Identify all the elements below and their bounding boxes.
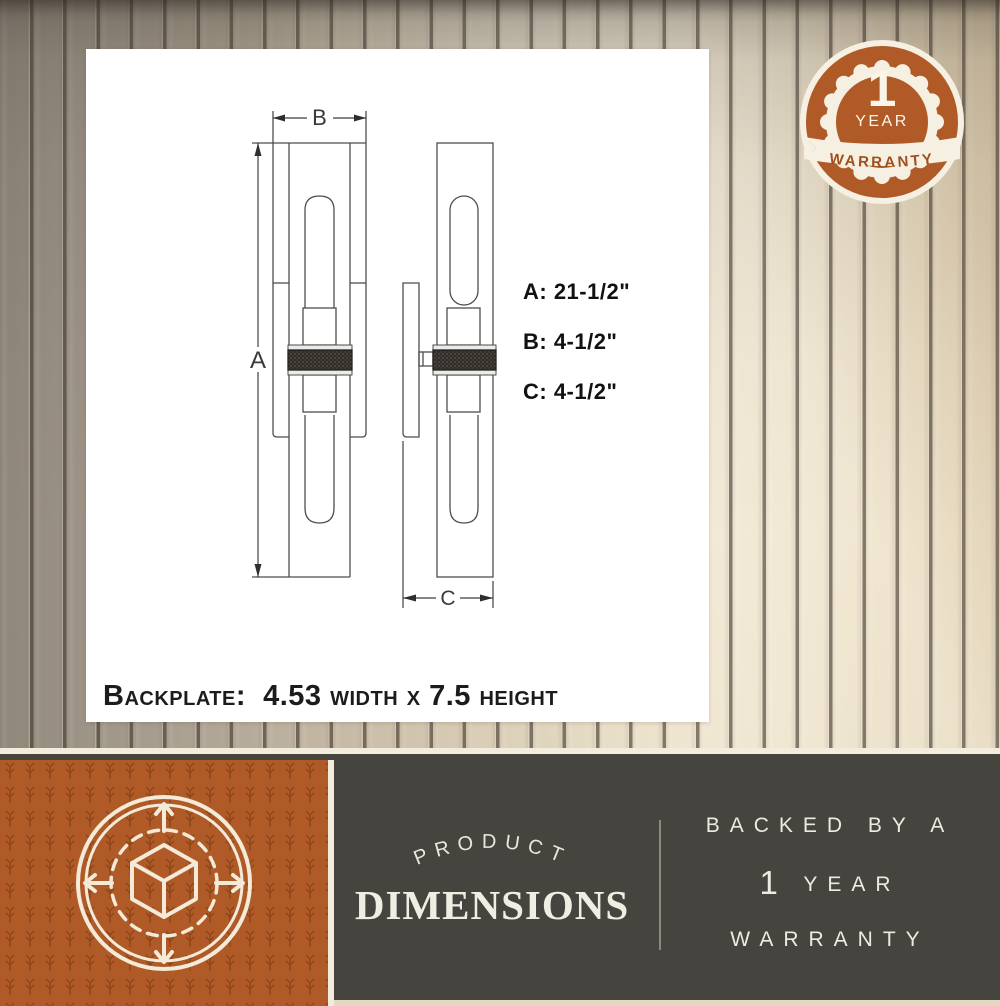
dim-letter-c: C: [440, 587, 455, 610]
svg-text:PRODUCT: PRODUCT: [411, 831, 574, 870]
warranty-line-2: 1 YEAR: [759, 864, 900, 902]
dimensions-title: DIMENSIONS: [342, 881, 642, 929]
dimension-value-b: B: 4-1/2": [523, 329, 617, 355]
product-dimensions-graphic: { "card": { "dim_letters": { "a": "A", "…: [0, 0, 1000, 1000]
footer-separator: [328, 760, 334, 1006]
dimension-value-a: A: 21-1/2": [523, 279, 630, 305]
product-label: PRODUCT: [411, 831, 574, 870]
warranty-badge: 1 YEAR WARRANTY: [798, 40, 966, 208]
warranty-text-block: BACKED BY A 1 YEAR WARRANTY: [680, 760, 980, 1006]
warranty-year-unit: YEAR: [803, 873, 900, 896]
3d-dimensions-icon: [78, 797, 250, 969]
footer-strip: PRODUCT DIMENSIONS BACKED BY A 1 YEAR WA…: [0, 748, 1000, 1000]
badge-unit: YEAR: [855, 113, 909, 130]
warranty-line-3: WARRANTY: [730, 928, 929, 952]
warranty-line-1: BACKED BY A: [706, 814, 955, 838]
diagram-card: B A C A: 21-1/2" B: 4-1/2" C: 4-1/2" Bac…: [86, 49, 709, 722]
dimension-value-c: C: 4-1/2": [523, 379, 617, 405]
dim-letter-b: B: [312, 105, 327, 130]
backplate-size-note: Backplate: 4.53 width x 7.5 height: [103, 680, 558, 713]
dimensions-icon-box: [0, 760, 328, 1006]
badge-number: 1: [868, 60, 897, 118]
product-dimensions-block: PRODUCT DIMENSIONS: [342, 760, 642, 1006]
footer-divider-line: [659, 820, 661, 950]
warranty-year-number: 1: [759, 864, 787, 901]
product-arc-text: PRODUCT: [342, 798, 642, 894]
dim-letter-a: A: [250, 347, 266, 374]
